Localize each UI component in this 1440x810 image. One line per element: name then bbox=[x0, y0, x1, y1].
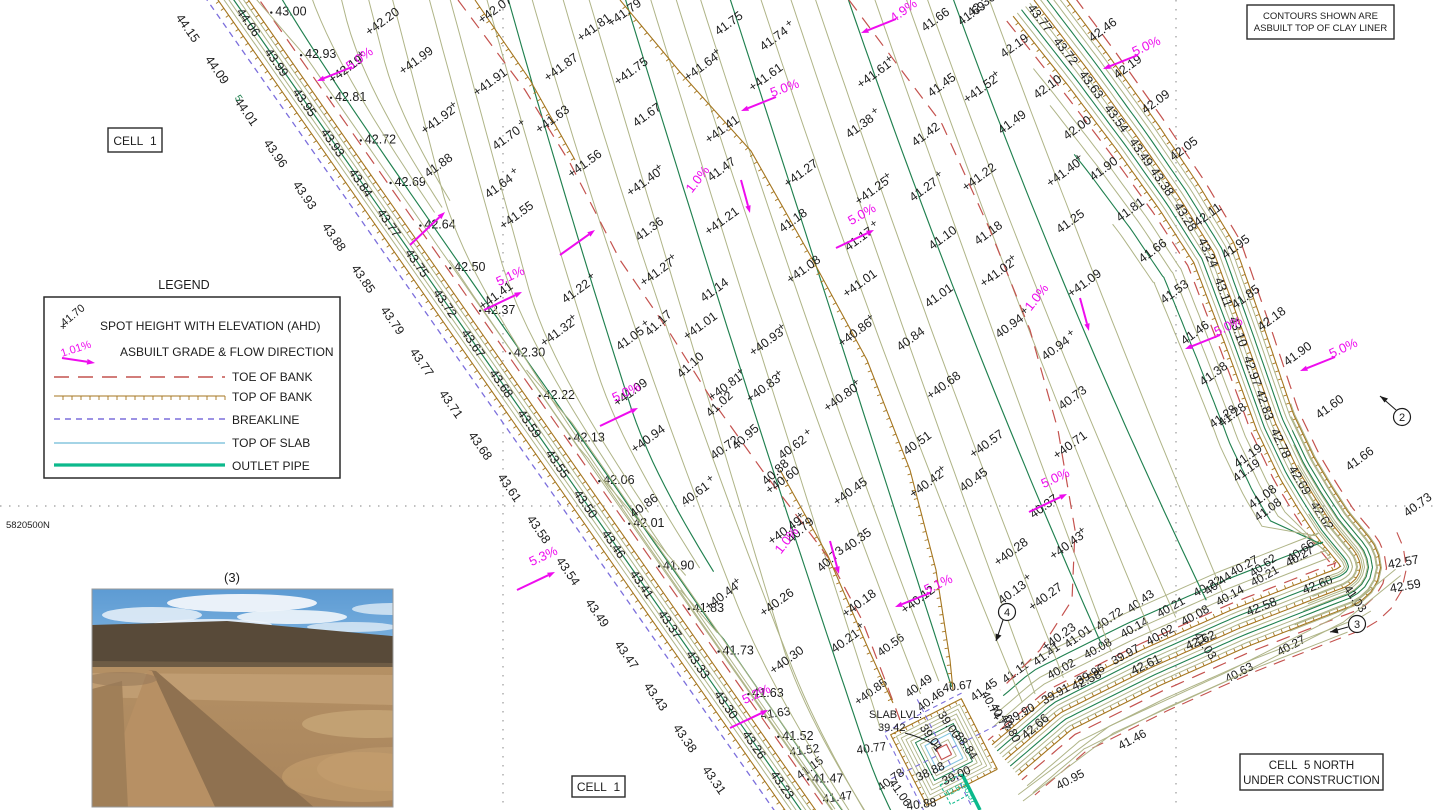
svg-text:SPOT HEIGHT WITH ELEVATION (AH: SPOT HEIGHT WITH ELEVATION (AHD) bbox=[100, 319, 320, 333]
svg-text:CELL 1: CELL 1 bbox=[113, 134, 157, 148]
svg-text:TOP OF SLAB: TOP OF SLAB bbox=[232, 436, 310, 450]
svg-text:CELL 1: CELL 1 bbox=[577, 780, 621, 794]
svg-text:ASBUILT TOP OF CLAY LINER: ASBUILT TOP OF CLAY LINER bbox=[1254, 23, 1388, 34]
svg-text:CELL 5 NORTH: CELL 5 NORTH bbox=[1269, 760, 1354, 772]
svg-text:4: 4 bbox=[1004, 607, 1010, 619]
svg-text:2: 2 bbox=[1399, 412, 1405, 424]
svg-text:UNDER CONSTRUCTION: UNDER CONSTRUCTION bbox=[1243, 775, 1380, 787]
svg-text:TOE OF BANK: TOE OF BANK bbox=[232, 370, 312, 384]
svg-text:LEGEND: LEGEND bbox=[158, 278, 209, 292]
svg-text:3: 3 bbox=[1354, 619, 1360, 631]
svg-text:CONTOURS SHOWN ARE: CONTOURS SHOWN ARE bbox=[1263, 11, 1378, 22]
svg-text:TOP OF BANK: TOP OF BANK bbox=[232, 390, 312, 404]
svg-text:42.81: 42.81 bbox=[335, 90, 366, 104]
svg-text:BREAKLINE: BREAKLINE bbox=[232, 413, 299, 427]
svg-text:+: + bbox=[60, 321, 66, 333]
svg-text:(3): (3) bbox=[224, 570, 240, 585]
svg-text:OUTLET PIPE: OUTLET PIPE bbox=[232, 459, 310, 473]
svg-text:39.42: 39.42 bbox=[878, 722, 906, 734]
svg-text:5820500N: 5820500N bbox=[6, 520, 50, 531]
svg-text:43.00: 43.00 bbox=[275, 5, 306, 19]
svg-text:42.93: 42.93 bbox=[305, 47, 336, 61]
svg-text:ASBUILT GRADE & FLOW DIRECTION: ASBUILT GRADE & FLOW DIRECTION bbox=[120, 345, 334, 359]
